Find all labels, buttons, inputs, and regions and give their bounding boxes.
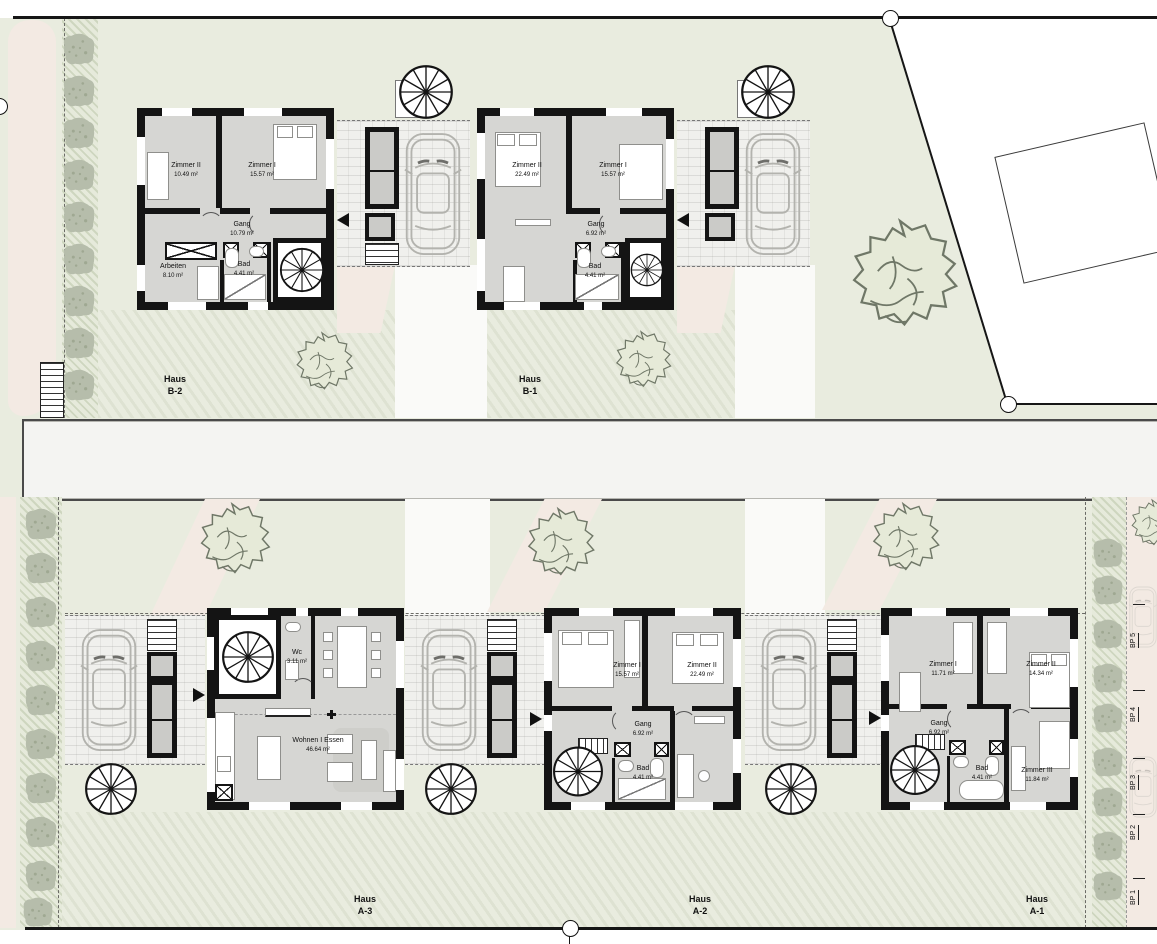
spiral-staircase-icon: [279, 244, 325, 296]
haus-a1-floorplan: Zimmer I11.71 m² Zimmer II14.34 m² Gang6…: [881, 608, 1078, 810]
boundary-marker: [562, 920, 579, 937]
storage-room: [365, 127, 399, 209]
tree-icon: [22, 725, 60, 763]
room-label-gang: Gang6.92 m²: [633, 720, 653, 738]
tree-icon: [22, 593, 60, 631]
carport-a2: [405, 615, 545, 765]
tree-icon: [1090, 868, 1126, 904]
haus-b2-floorplan: Zimmer II10.49 m² Zimmer I15.57 m² Gang1…: [137, 108, 334, 310]
sink: [285, 622, 301, 632]
wardrobe-crossed: [165, 242, 217, 260]
room-label-bad: Bad4.41 m²: [585, 262, 605, 280]
room-label-wohnen: Wohnen I Essen46.64 m²: [292, 736, 343, 754]
chair: [323, 632, 333, 642]
room-label-zimmer1: Zimmer I15.57 m²: [599, 161, 627, 179]
storage-room-small: [827, 652, 857, 680]
tree-icon: [22, 681, 60, 719]
wardrobe-crossed: [949, 740, 966, 755]
window: [497, 108, 537, 116]
parking-tick: [1133, 758, 1145, 759]
chair: [323, 668, 333, 678]
tree-icon: [1090, 572, 1126, 608]
tree-icon: [1090, 535, 1126, 571]
room-label-zimmer1: Zimmer I15.57 m²: [613, 661, 641, 679]
window: [241, 108, 285, 116]
appliance-crossed: [215, 784, 233, 801]
room-label-gang: Gang6.92 m²: [929, 719, 949, 737]
window: [246, 802, 293, 810]
kitchen-island: [257, 736, 281, 780]
entrance-arrow-icon: [193, 688, 205, 702]
storage-room-small: [147, 652, 177, 680]
partition-wall: [632, 706, 674, 711]
boundary-line-south: [25, 927, 1157, 930]
room-label-zimmer2: Zimmer II14.34 m²: [1026, 660, 1056, 678]
bathtub: [959, 780, 1004, 800]
pillow: [676, 634, 694, 646]
window: [907, 802, 947, 810]
window: [501, 302, 543, 310]
footpath-west: [8, 20, 56, 416]
parking-spot-bp1: BP 1: [1130, 890, 1139, 905]
storage-room: [147, 680, 177, 758]
door-arc: [199, 212, 223, 236]
storage-room: [705, 127, 739, 209]
haus-label-a3: HausA-3: [330, 894, 400, 917]
window: [881, 712, 889, 734]
boundary-marker: [1000, 396, 1017, 413]
parking-spot-bp2: BP 2: [1130, 825, 1139, 840]
entrance-arrow-icon: [869, 711, 881, 725]
tree-icon: [602, 327, 680, 405]
entrance-arrow-icon: [337, 213, 349, 227]
window: [326, 136, 334, 192]
path-white-b2: [395, 265, 487, 418]
wardrobe: [987, 622, 1007, 674]
storage-room-small: [487, 652, 517, 680]
pillow: [562, 632, 582, 645]
spiral-staircase-icon: [552, 744, 604, 799]
tree-icon: [60, 156, 98, 194]
window: [477, 236, 485, 294]
room-label-zimmer2: Zimmer II10.49 m²: [171, 161, 201, 179]
chair: [371, 632, 381, 642]
sink: [953, 756, 969, 768]
spiral-staircase-icon: [398, 64, 454, 120]
tree-icon: [856, 498, 950, 592]
pillow: [588, 632, 608, 645]
chair: [371, 668, 381, 678]
room-label-bad: Bad4.41 m²: [633, 764, 653, 782]
partition-wall: [566, 208, 600, 214]
carport-a1: [745, 615, 885, 765]
tree-icon: [826, 212, 974, 360]
outdoor-stairs-west: [40, 362, 64, 418]
window: [207, 715, 215, 795]
window: [396, 638, 404, 691]
storage-room-small: [365, 213, 395, 241]
room-label-gang: Gang6.92 m²: [586, 220, 606, 238]
tree-icon: [1090, 784, 1126, 820]
path-white-b1: [735, 265, 815, 418]
partition-wall: [270, 208, 326, 214]
chair: [323, 650, 333, 660]
partition-wall: [947, 756, 950, 802]
room-label-zimmer2: Zimmer II22.49 m²: [687, 661, 717, 679]
window: [672, 608, 716, 616]
outdoor-stairs: [147, 619, 177, 651]
desk: [677, 754, 694, 798]
tree-icon: [511, 503, 605, 597]
tree-icon: [60, 282, 98, 320]
spiral-staircase-icon: [630, 244, 664, 296]
wardrobe-crossed: [614, 742, 631, 757]
tree-icon: [20, 894, 56, 930]
outdoor-stairs: [365, 243, 399, 265]
spiral-staircase-icon: [889, 742, 941, 798]
spiral-staircase-icon: [764, 762, 818, 816]
car-icon: [403, 129, 463, 259]
window: [909, 608, 949, 616]
window: [245, 302, 271, 310]
pillow: [497, 134, 515, 146]
tree-icon: [1090, 744, 1126, 780]
window: [576, 608, 616, 616]
window: [1007, 802, 1049, 810]
haus-label-b1: HausB-1: [495, 374, 565, 397]
window: [581, 302, 605, 310]
boundary-line-north: [13, 16, 1157, 19]
spiral-staircase-icon: [424, 762, 478, 816]
pillow: [519, 134, 537, 146]
partition-wall: [220, 208, 250, 214]
stair-room: [273, 238, 326, 302]
tree-icon: [60, 72, 98, 110]
partition-wall: [977, 616, 983, 704]
window: [159, 108, 195, 116]
toilet: [249, 246, 264, 257]
stair-room: [214, 615, 281, 699]
bed: [899, 672, 921, 712]
spiral-staircase-icon: [221, 622, 275, 692]
tree-icon: [60, 114, 98, 152]
window: [568, 802, 608, 810]
sideboard: [694, 716, 725, 724]
tree-icon: [60, 324, 98, 362]
room-label-bad: Bad4.41 m²: [234, 260, 254, 278]
partition-wall: [216, 116, 222, 208]
haus-label-a2: HausA-2: [665, 894, 735, 917]
boundary-line-east: [1008, 403, 1157, 405]
access-road: [22, 419, 1157, 501]
pillow: [700, 634, 718, 646]
window: [165, 302, 209, 310]
room-label-wc: Wc3.11 m²: [287, 648, 307, 666]
site-plan: Zimmer II10.49 m² Zimmer I15.57 m² Gang1…: [0, 0, 1157, 944]
room-label-zimmer1: Zimmer I15.57 m²: [248, 161, 276, 179]
car-icon: [79, 625, 139, 755]
parking-tick: [1133, 878, 1145, 879]
boundary-marker: [882, 10, 899, 27]
tree-icon: [22, 637, 60, 675]
parking-tick: [1133, 690, 1145, 691]
haus-a2-floorplan: Zimmer I15.57 m² Zimmer II22.49 m² Gang6…: [544, 608, 741, 810]
haus-a3-floorplan: Wc3.11 m² Wohnen I Essen46.64 m²: [207, 608, 404, 810]
desk: [503, 266, 525, 302]
stair-room: [625, 238, 666, 302]
chair: [371, 650, 381, 660]
window: [477, 130, 485, 182]
tree-icon: [1090, 660, 1126, 696]
haus-b1-floorplan: Zimmer II22.49 m² Zimmer I15.57 m² Gang6…: [477, 108, 674, 310]
tree-icon: [60, 366, 98, 404]
tree-icon: [60, 30, 98, 68]
entrance-arrow-icon: [677, 213, 689, 227]
room-label-zimmer2: Zimmer II22.49 m²: [512, 161, 542, 179]
door-arc: [291, 678, 315, 702]
partition-wall: [692, 706, 733, 711]
window: [396, 756, 404, 793]
bed: [1039, 721, 1070, 769]
window: [137, 262, 145, 294]
path-white-a1: [745, 499, 825, 615]
room-label-zimmer1: Zimmer I11.71 m²: [929, 660, 957, 678]
garden-hatch-a-row: [57, 812, 1085, 928]
outdoor-stairs: [827, 619, 857, 651]
car-icon: [759, 625, 819, 755]
window: [1070, 736, 1078, 780]
window: [881, 632, 889, 684]
parking-tick: [1133, 604, 1145, 605]
storage-room: [487, 680, 517, 758]
window: [1007, 608, 1051, 616]
window: [338, 608, 361, 616]
spiral-staircase-icon: [84, 762, 138, 816]
toilet: [601, 246, 616, 257]
room-label-arbeiten: Arbeiten8.10 m²: [160, 262, 186, 280]
appliance: [217, 756, 231, 772]
section-marker-icon: [327, 710, 336, 719]
entrance-arrow-icon: [530, 712, 542, 726]
window: [1070, 636, 1078, 690]
storage-room: [827, 680, 857, 758]
partition-wall: [552, 706, 612, 711]
sofa: [327, 762, 353, 782]
door-arc: [947, 707, 971, 731]
partition-wall: [620, 208, 666, 214]
carport-b1: [677, 120, 810, 267]
window: [666, 136, 674, 192]
parking-spot-bp3: BP 3: [1130, 775, 1139, 790]
haus-label-a1: HausA-1: [1002, 894, 1072, 917]
desk: [197, 266, 219, 300]
pillow: [297, 126, 313, 138]
chair: [698, 770, 710, 782]
pillow: [277, 126, 293, 138]
window: [672, 802, 716, 810]
partition-wall: [566, 116, 572, 208]
spiral-staircase-icon: [740, 64, 796, 120]
sofa: [383, 750, 396, 792]
window: [544, 630, 552, 684]
tree-icon: [22, 549, 60, 587]
car-icon: [419, 625, 479, 755]
tree-icon: [1090, 616, 1126, 652]
window: [733, 736, 741, 776]
car-icon: [743, 129, 803, 259]
tree-icon: [22, 857, 60, 895]
parking-spot-bp5: BP 5: [1130, 633, 1139, 648]
tree-icon: [60, 198, 98, 236]
tree-icon: [60, 240, 98, 278]
outdoor-stairs: [487, 619, 517, 651]
tree-icon: [1090, 700, 1126, 736]
kitchen-counter: [265, 708, 311, 717]
path-white-a2: [405, 499, 490, 615]
window: [293, 608, 311, 616]
parking-spot-bp4: BP 4: [1130, 707, 1139, 722]
parking-tick: [1133, 814, 1145, 815]
tree-icon: [22, 813, 60, 851]
haus-label-b2: HausB-2: [140, 374, 210, 397]
storage-room-small: [705, 213, 735, 241]
sink: [618, 760, 634, 772]
coffee-table: [361, 740, 377, 780]
property-line-east: [1085, 497, 1086, 928]
room-label-bad: Bad4.41 m²: [972, 764, 992, 782]
tree-icon: [22, 505, 60, 543]
room-label-gang: Gang10.79 m²: [230, 220, 254, 238]
window: [733, 636, 741, 690]
room-label-zimmer3: Zimmer III11.84 m²: [1021, 766, 1053, 784]
door-arc: [672, 711, 696, 735]
tree-icon: [22, 769, 60, 807]
partition-wall: [267, 242, 271, 302]
dining-table: [337, 626, 367, 688]
wardrobe-crossed: [654, 742, 669, 757]
carport-b2: [337, 120, 470, 267]
wardrobe-crossed: [989, 740, 1004, 755]
sideboard: [515, 219, 551, 226]
parking-strip-edge: [1126, 497, 1127, 928]
partition-wall: [642, 616, 648, 706]
window: [603, 108, 645, 116]
partition-wall: [612, 758, 615, 802]
window: [137, 134, 145, 188]
footpath-southwest: [0, 497, 16, 928]
door-arc: [1009, 709, 1033, 733]
carport-a3: [65, 615, 205, 765]
window: [338, 802, 375, 810]
window: [544, 712, 552, 734]
tree-icon: [183, 498, 281, 596]
partition-wall: [145, 208, 200, 214]
tree-icon: [282, 328, 362, 408]
bed: [147, 152, 169, 200]
tree-icon: [1090, 828, 1126, 864]
